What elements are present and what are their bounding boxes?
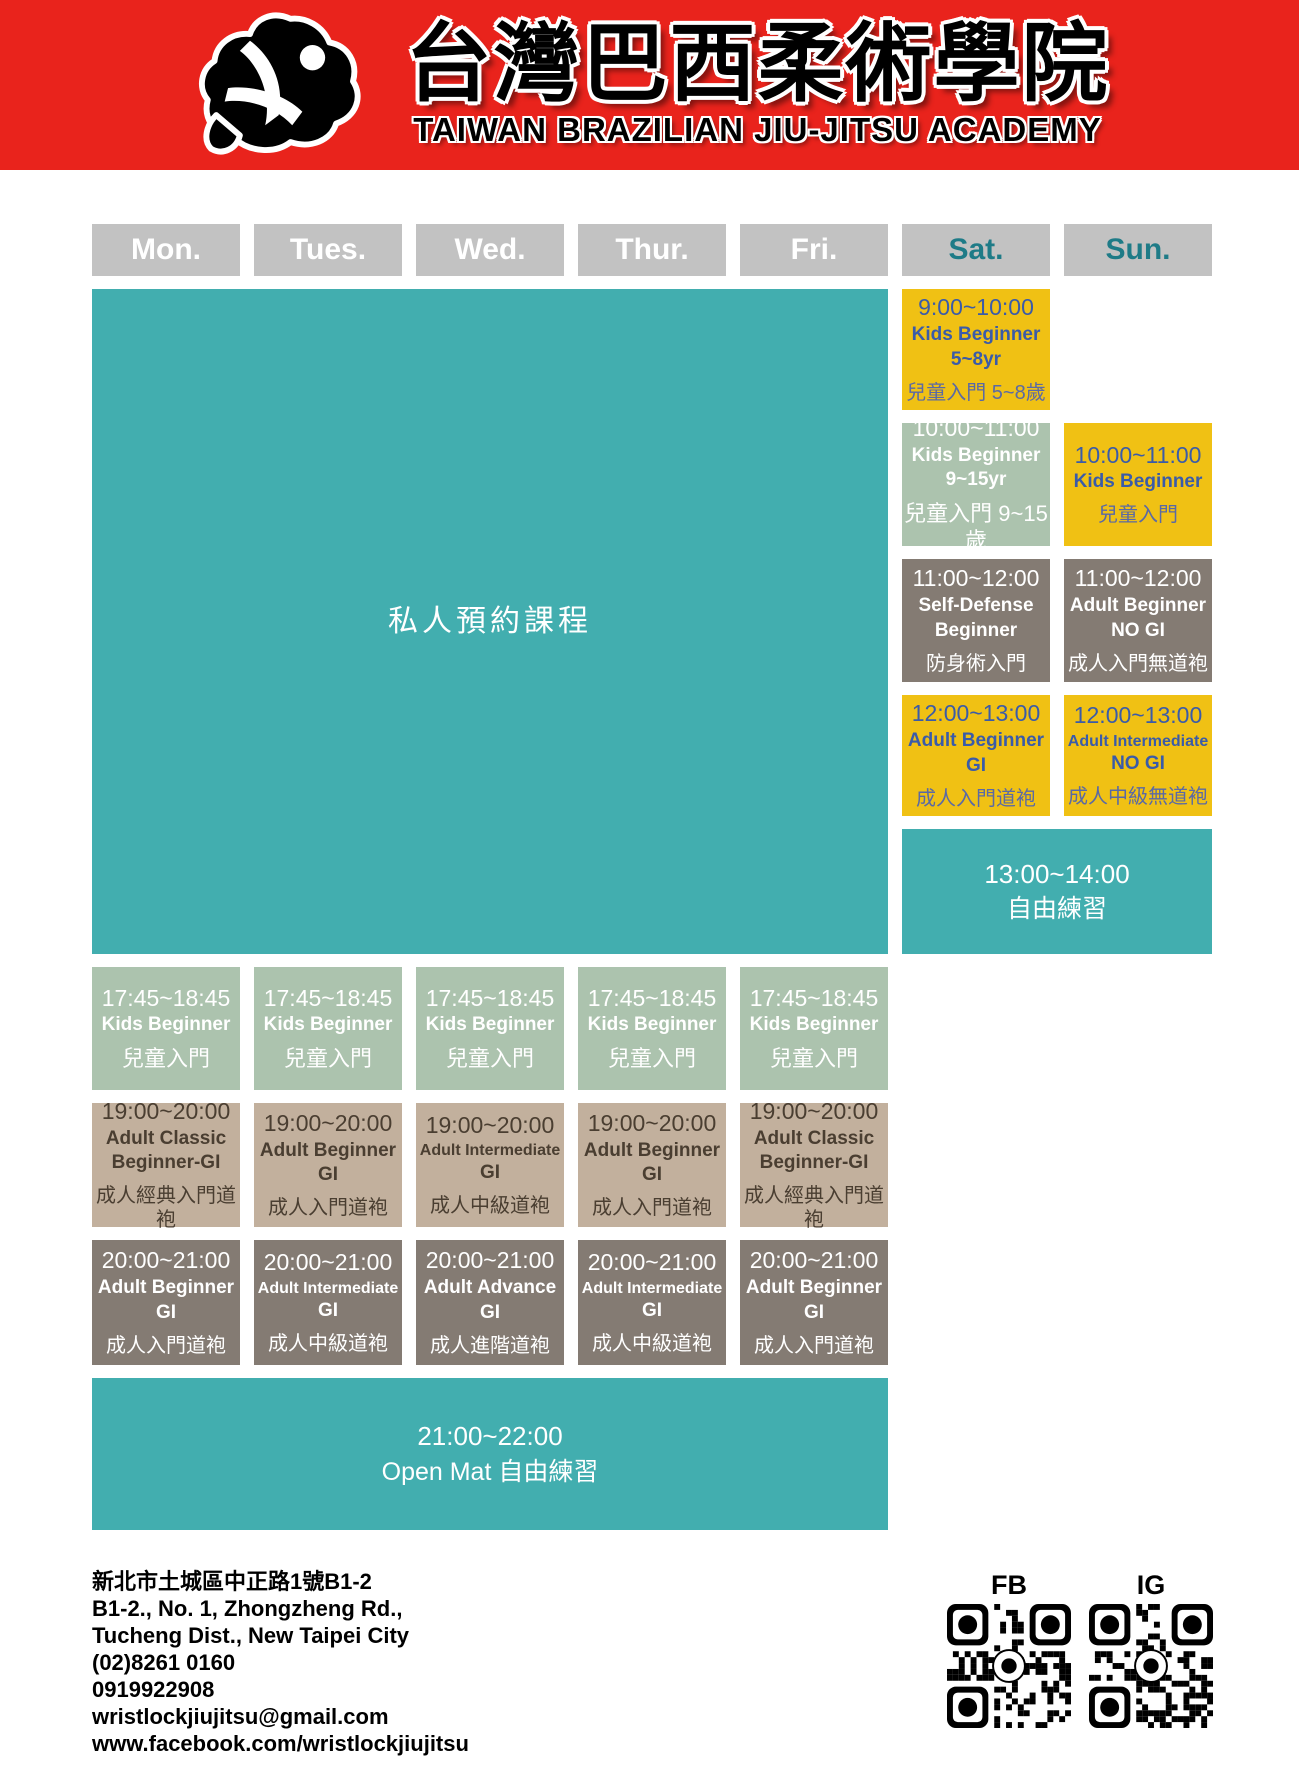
class-time: 20:00~21:00 [102, 1247, 231, 1275]
class-title-zh: 成人中級道袍 [430, 1194, 550, 1218]
academy-title-zh: 台灣巴西柔術學院 [406, 21, 1110, 107]
class-title-zh: 兒童入門 5~8歲 [906, 381, 1045, 405]
class-time: 12:00~13:00 [912, 700, 1041, 728]
class-title-zh: 成人入門道袍 [106, 1334, 226, 1358]
weekday-open-mat-2100: 21:00~22:00Open Mat 自由練習 [92, 1378, 888, 1530]
class-title-zh: 兒童入門 [770, 1046, 858, 1072]
class-time: 12:00~13:00 [1074, 702, 1203, 730]
class-title: Kids Beginner [750, 1014, 879, 1037]
class-title: Adult Beginner [908, 730, 1044, 753]
class-title: Adult Intermediate [420, 1141, 560, 1160]
sat-self-defense-beginner-1100: 11:00~12:00Self-DefenseBeginner防身術入門 [902, 559, 1050, 682]
class-time: 19:00~20:00 [102, 1098, 231, 1126]
contact-line: wristlockjiujitsu@gmail.com [92, 1703, 469, 1730]
class-time: 9:00~10:00 [918, 294, 1034, 322]
class-title-zh: 兒童入門 [122, 1046, 210, 1072]
class-title: Adult Beginner [746, 1277, 882, 1300]
class-title: Adult Beginner [1070, 595, 1206, 618]
class-time: 17:45~18:45 [750, 985, 879, 1013]
class-title: Adult Beginner [98, 1277, 234, 1300]
day-header-tues: Tues. [254, 224, 402, 276]
class-time: 20:00~21:00 [426, 1247, 555, 1275]
class-title: Kids Beginner [912, 324, 1041, 347]
class-title-zh: 兒童入門 [446, 1046, 534, 1072]
class-title: Adult Beginner [584, 1140, 720, 1163]
class-title: Kids Beginner [264, 1014, 393, 1037]
class-title-zh: 成人中級道袍 [268, 1332, 388, 1356]
class-title-zh: 成人中級道袍 [592, 1332, 712, 1356]
class-title-zh: Open Mat 自由練習 [382, 1457, 599, 1487]
class-time: 17:45~18:45 [588, 985, 717, 1013]
qr-fb: FB [947, 1570, 1071, 1728]
class-title: NO GI [1111, 620, 1165, 643]
class-title: Adult Intermediate [582, 1279, 722, 1298]
class-title-zh: 兒童入門 9~15歲 [904, 501, 1048, 554]
qr-area: FBIG [947, 1570, 1213, 1728]
class-time: 17:45~18:45 [426, 985, 555, 1013]
class-title: NO GI [1111, 753, 1165, 776]
class-time: 19:00~20:00 [426, 1112, 555, 1140]
fri-adult-beginner-gi-2000: 20:00~21:00Adult BeginnerGI成人入門道袍 [740, 1240, 888, 1365]
day-header-wed: Wed. [416, 224, 564, 276]
schedule-grid: Mon.Tues.Wed.Thur.Fri.Sat.Sun.私人預約課程9:00… [92, 224, 1212, 1530]
footer: 新北市土城區中正路1號B1-2B1-2., No. 1, Zhongzheng … [0, 1530, 1299, 1757]
qr-label: IG [1137, 1570, 1166, 1601]
class-time: 20:00~21:00 [750, 1247, 879, 1275]
class-title: GI [318, 1164, 338, 1187]
fri-kids-beginner-1745: 17:45~18:45Kids Beginner兒童入門 [740, 967, 888, 1090]
sat-kids-beginner-1000: 10:00~11:00Kids Beginner9~15yr兒童入門 9~15歲 [902, 423, 1050, 546]
class-title-zh: 私人預約課程 [388, 604, 592, 640]
class-time: 20:00~21:00 [264, 1249, 393, 1277]
contact-line: 0919922908 [92, 1676, 469, 1703]
class-title: Adult Intermediate [258, 1279, 398, 1298]
class-time: 21:00~22:00 [417, 1421, 562, 1452]
class-title: GI [642, 1164, 662, 1187]
sat-adult-beginner-gi-1200: 12:00~13:00Adult BeginnerGI成人入門道袍 [902, 695, 1050, 816]
contact-line: www.facebook.com/wristlockjiujitsu [92, 1730, 469, 1757]
class-time: 19:00~20:00 [750, 1098, 879, 1126]
sun-adult-beginner-nogi-1100: 11:00~12:00Adult BeginnerNO GI成人入門無道袍 [1064, 559, 1212, 682]
class-title-zh: 兒童入門 [608, 1046, 696, 1072]
class-time: 13:00~14:00 [984, 859, 1129, 890]
class-title-zh: 兒童入門 [1098, 503, 1178, 527]
class-time: 10:00~11:00 [913, 415, 1040, 443]
class-title: Adult Beginner [260, 1140, 396, 1163]
class-title: Beginner [935, 620, 1017, 643]
class-title-zh: 成人中級無道袍 [1068, 785, 1208, 809]
class-title: Kids Beginner [426, 1014, 555, 1037]
class-title-zh: 成人入門道袍 [268, 1196, 388, 1220]
sun-kids-beginner-1000: 10:00~11:00Kids Beginner兒童入門 [1064, 423, 1212, 546]
thu-adult-intermediate-gi-2000: 20:00~21:00Adult IntermediateGI成人中級道袍 [578, 1240, 726, 1365]
header-banner: 台灣巴西柔術學院 TAIWAN BRAZILIAN JIU-JITSU ACAD… [0, 0, 1299, 170]
contact-info: 新北市土城區中正路1號B1-2B1-2., No. 1, Zhongzheng … [92, 1568, 469, 1757]
class-title: 9~15yr [946, 469, 1007, 492]
class-title: GI [318, 1300, 338, 1323]
class-title-zh: 防身術入門 [926, 652, 1026, 676]
class-time: 20:00~21:00 [588, 1249, 717, 1277]
academy-title-en: TAIWAN BRAZILIAN JIU-JITSU ACADEMY [413, 111, 1102, 149]
mon-kids-beginner-1745: 17:45~18:45Kids Beginner兒童入門 [92, 967, 240, 1090]
class-title: Self-Defense [918, 595, 1033, 618]
day-header-sat: Sat. [902, 224, 1050, 276]
contact-line: (02)8261 0160 [92, 1649, 469, 1676]
sat-kids-beginner-0900: 9:00~10:00Kids Beginner5~8yr兒童入門 5~8歲 [902, 289, 1050, 410]
tue-adult-intermediate-gi-2000: 20:00~21:00Adult IntermediateGI成人中級道袍 [254, 1240, 402, 1365]
class-time: 19:00~20:00 [588, 1110, 717, 1138]
thu-adult-beginner-gi-1900: 19:00~20:00Adult BeginnerGI成人入門道袍 [578, 1103, 726, 1227]
class-title: GI [156, 1302, 176, 1325]
class-title: Adult Classic [754, 1128, 874, 1151]
class-time: 11:00~12:00 [913, 565, 1040, 593]
sun-adult-intermediate-nogi-1200: 12:00~13:00Adult IntermediateNO GI成人中級無道… [1064, 695, 1212, 816]
class-title-zh: 成人入門道袍 [754, 1334, 874, 1358]
class-title: Kids Beginner [912, 445, 1041, 468]
day-header-thur: Thur. [578, 224, 726, 276]
class-title: GI [966, 755, 986, 778]
class-title: GI [480, 1302, 500, 1325]
wed-kids-beginner-1745: 17:45~18:45Kids Beginner兒童入門 [416, 967, 564, 1090]
class-title: Kids Beginner [1074, 471, 1203, 494]
mon-adult-classic-beginner-gi-1900: 19:00~20:00Adult ClassicBeginner-GI成人經典入… [92, 1103, 240, 1227]
day-header-mon: Mon. [92, 224, 240, 276]
class-title-zh: 自由練習 [1007, 894, 1107, 924]
class-title: Beginner-GI [760, 1152, 869, 1175]
class-title: Kids Beginner [102, 1014, 231, 1037]
wed-adult-advance-gi-2000: 20:00~21:00Adult AdvanceGI成人進階道袍 [416, 1240, 564, 1365]
class-title-zh: 成人經典入門道袍 [94, 1184, 238, 1232]
class-title: GI [642, 1300, 662, 1323]
class-title-zh: 兒童入門 [284, 1046, 372, 1072]
class-time: 11:00~12:00 [1075, 565, 1202, 593]
private-lessons-weekday: 私人預約課程 [92, 289, 888, 954]
qr-code-image [947, 1604, 1071, 1728]
fri-adult-classic-beginner-gi-1900: 19:00~20:00Adult ClassicBeginner-GI成人經典入… [740, 1103, 888, 1227]
wed-adult-intermediate-gi-1900: 19:00~20:00Adult IntermediateGI成人中級道袍 [416, 1103, 564, 1227]
class-title: Kids Beginner [588, 1014, 717, 1037]
contact-line: Tucheng Dist., New Taipei City [92, 1622, 469, 1649]
day-header-fri: Fri. [740, 224, 888, 276]
contact-line: 新北市土城區中正路1號B1-2 [92, 1568, 469, 1595]
class-time: 17:45~18:45 [264, 985, 393, 1013]
weekend-free-practice-1300: 13:00~14:00自由練習 [902, 829, 1212, 954]
class-title: Adult Intermediate [1068, 732, 1208, 751]
class-title: Beginner-GI [112, 1152, 221, 1175]
grappler-silhouette-icon [190, 7, 386, 164]
mon-adult-beginner-gi-2000: 20:00~21:00Adult BeginnerGI成人入門道袍 [92, 1240, 240, 1365]
class-title-zh: 成人進階道袍 [430, 1334, 550, 1358]
class-title: GI [480, 1162, 500, 1185]
qr-ig: IG [1089, 1570, 1213, 1728]
tue-kids-beginner-1745: 17:45~18:45Kids Beginner兒童入門 [254, 967, 402, 1090]
class-title: Adult Advance [424, 1277, 556, 1300]
class-title-zh: 成人入門無道袍 [1068, 652, 1208, 676]
qr-code-image [1089, 1604, 1213, 1728]
class-time: 19:00~20:00 [264, 1110, 393, 1138]
day-header-sun: Sun. [1064, 224, 1212, 276]
class-title: 5~8yr [951, 349, 1001, 372]
thu-kids-beginner-1745: 17:45~18:45Kids Beginner兒童入門 [578, 967, 726, 1090]
class-title-zh: 成人經典入門道袍 [742, 1184, 886, 1232]
class-title-zh: 成人入門道袍 [916, 787, 1036, 811]
class-title-zh: 成人入門道袍 [592, 1196, 712, 1220]
class-time: 17:45~18:45 [102, 985, 231, 1013]
qr-label: FB [991, 1570, 1027, 1601]
tue-adult-beginner-gi-1900: 19:00~20:00Adult BeginnerGI成人入門道袍 [254, 1103, 402, 1227]
class-title: Adult Classic [106, 1128, 226, 1151]
contact-line: B1-2., No. 1, Zhongzheng Rd., [92, 1595, 469, 1622]
class-title: GI [804, 1302, 824, 1325]
class-time: 10:00~11:00 [1075, 442, 1202, 470]
